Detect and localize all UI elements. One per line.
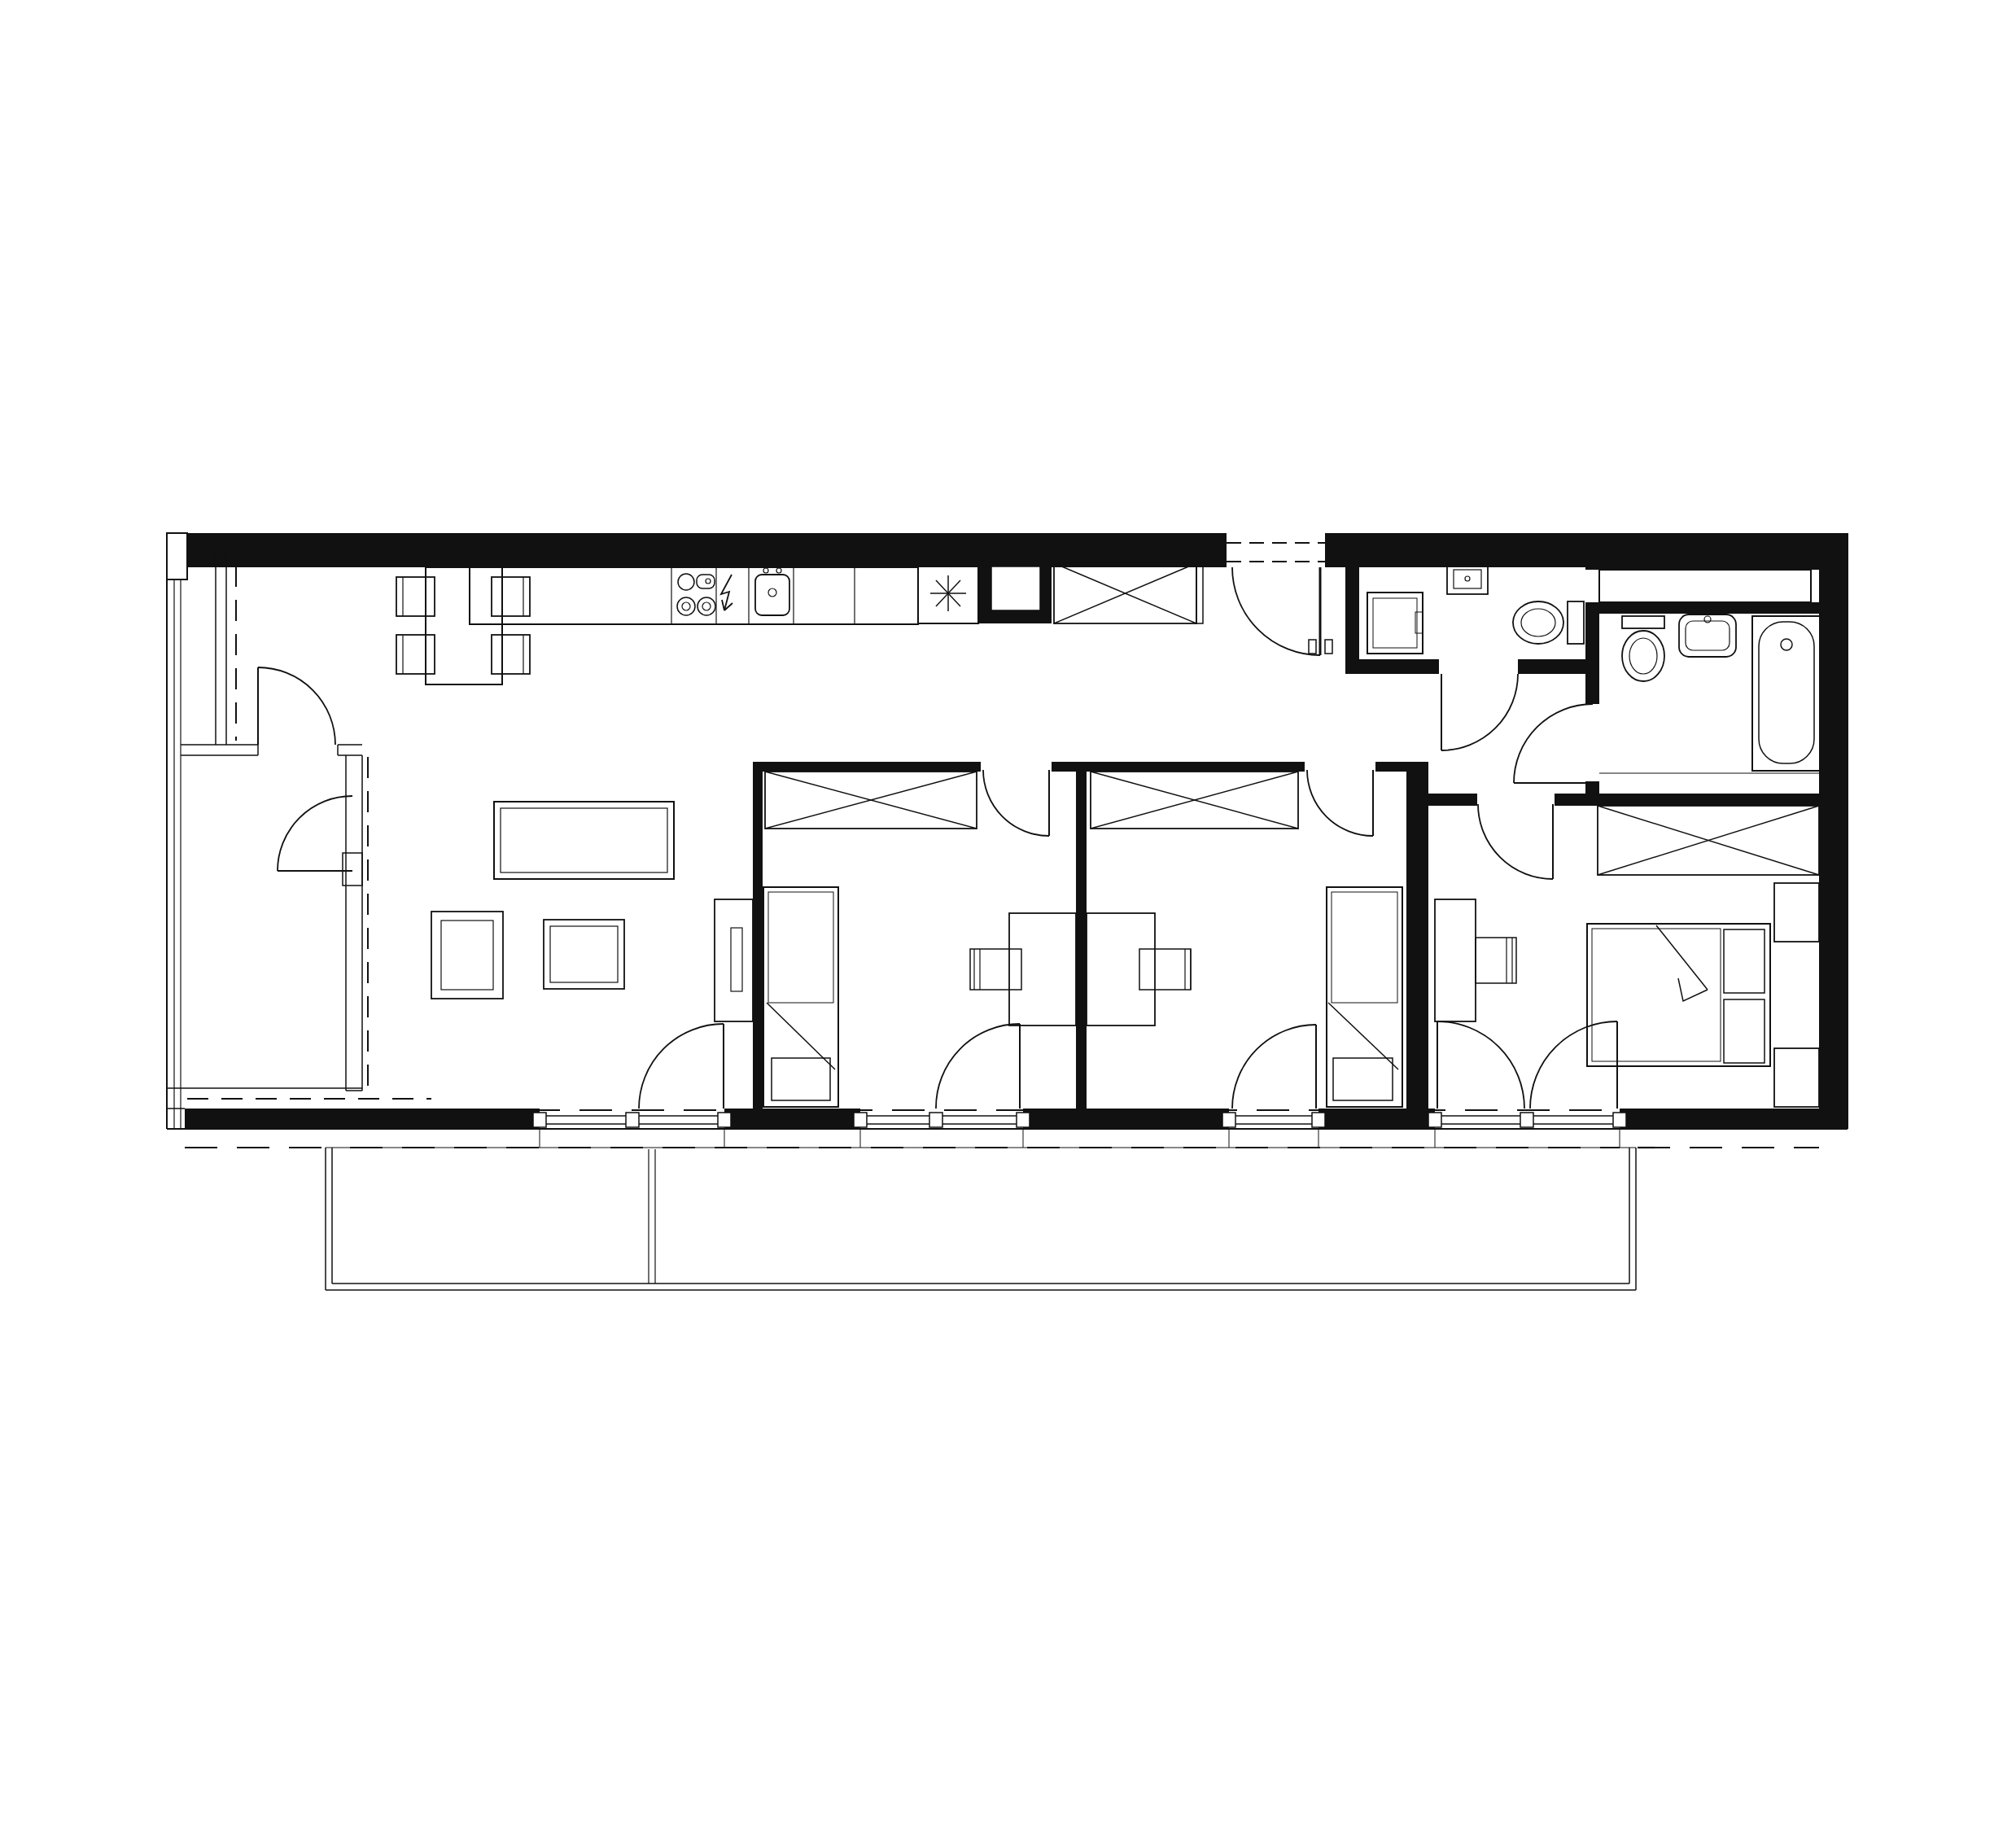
plan-background [0, 0, 2016, 1828]
wall-top-right [1325, 533, 1585, 567]
window-living-post-a [533, 1113, 546, 1127]
wall-top-left [187, 533, 1227, 567]
window-bedroom1-post-b [929, 1113, 942, 1127]
wall-bedroom1-top-a [753, 762, 981, 772]
wall-bottom-seg1 [185, 1109, 540, 1129]
wall-wc-bottom-b [1518, 659, 1587, 674]
wall-bedroom-divider [1076, 772, 1087, 1109]
wall-bottom-seg2 [724, 1109, 860, 1129]
wall-wc-left [1345, 564, 1359, 674]
wall-master-top-b [1555, 794, 1819, 806]
wall-wc-bottom-a [1345, 659, 1439, 674]
wall-right [1819, 533, 1848, 1129]
floor-plan-canvas [0, 0, 2016, 1828]
window-master-post-a [1428, 1113, 1441, 1127]
window-living-post-b [626, 1113, 639, 1127]
wall-master-top-a [1427, 794, 1477, 806]
wall-top-bathroom [1585, 533, 1819, 570]
wall-bedroom2-master [1406, 762, 1428, 1109]
window-master-post-b [1520, 1113, 1533, 1127]
window-bedroom2-post-a [1222, 1113, 1235, 1127]
wall-bedroom2-top-b [1375, 762, 1406, 772]
wall-bottom-seg3 [1023, 1109, 1229, 1129]
wall-bedroom2-top-a [1087, 762, 1305, 772]
wall-bedroom1-left [753, 762, 763, 1109]
wall-bathroom-left [1585, 602, 1599, 704]
floor-plan-page: Apartment floor plan [0, 0, 2016, 1828]
wall-bottom-seg4 [1318, 1109, 1435, 1129]
wall-bottom-seg5 [1620, 1109, 1848, 1129]
window-bedroom1-post-a [854, 1113, 867, 1127]
window-living-post-c [718, 1113, 731, 1127]
wall-niche-bathroom [1599, 570, 1811, 602]
shaft-duct-inner [991, 566, 1040, 610]
window-master-post-c [1613, 1113, 1626, 1127]
wall-top-bathroom-lower [1585, 602, 1819, 614]
wall-bedroom1-top-b [1052, 762, 1087, 772]
window-bedroom2-post-b [1312, 1113, 1325, 1127]
window-bedroom1-post-c [1017, 1113, 1030, 1127]
